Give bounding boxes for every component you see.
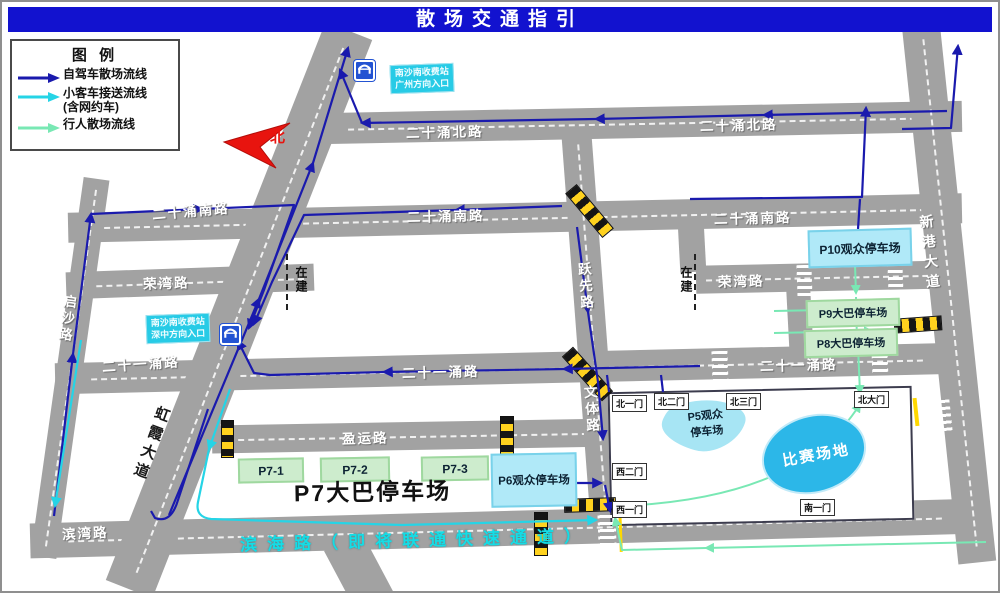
- legend: 图 例 自驾车散场流线 小客车接送流线 (含网约车) 行人散场流线: [10, 39, 180, 151]
- north-label: 北: [270, 126, 285, 147]
- parking-p6: P6观众停车场: [491, 452, 578, 507]
- road-label-wenti: 文体路: [578, 384, 601, 435]
- parking-p9: P9大巴停车场: [806, 298, 901, 328]
- legend-item-label: 行人散场流线: [63, 118, 135, 132]
- road-label-binwan: 滨湾路: [62, 521, 109, 543]
- expressway-icon: [220, 324, 241, 345]
- gate-north-3: 北三门: [726, 393, 761, 410]
- road-label-rongwan-west: 荣湾路: [143, 271, 190, 293]
- legend-item-driving: 自驾车散场流线: [16, 68, 174, 84]
- toll-direction: 深中方向入口: [151, 328, 205, 342]
- gate-south-1: 南一门: [800, 499, 835, 516]
- road-label-ershiyong-south-center: 二十涌南路: [407, 204, 485, 226]
- parking-p10: P10观众停车场: [808, 228, 913, 269]
- under-construction-dash: [286, 254, 288, 310]
- traffic-guide-map: 散场交通指引: [0, 0, 1000, 593]
- pedestrian-flow-arrow-icon: [16, 122, 60, 134]
- expressway-icon: [354, 60, 375, 81]
- gate-west-2: 西二门: [612, 463, 647, 480]
- legend-item-label-line2: (含网约车): [63, 101, 147, 115]
- legend-item-label: 自驾车散场流线: [63, 68, 147, 82]
- gate-north-2: 北二门: [654, 393, 689, 410]
- road-label-ershiyiyong-center: 二十一涌路: [402, 360, 480, 382]
- parking-p7-title: P7大巴停车场: [294, 472, 452, 509]
- under-construction-label-east: 在建: [678, 266, 695, 294]
- toll-direction: 广州方向入口: [395, 78, 449, 92]
- legend-item-label-line1: 小客车接送流线: [63, 87, 147, 101]
- gate-north-main: 北大门: [854, 391, 889, 408]
- legend-item-pedestrian: 行人散场流线: [16, 118, 174, 134]
- gate-north-1: 北一门: [612, 395, 647, 412]
- shuttle-flow-arrow-icon: [16, 91, 60, 103]
- under-construction-label-west: 在建: [293, 266, 310, 294]
- road-label-yingyun: 盈运路: [342, 426, 389, 447]
- road-label-ershiyong-north-east: 二十涌北路: [700, 113, 778, 135]
- legend-item-label: 小客车接送流线 (含网约车): [63, 87, 147, 115]
- gate-west-1: 西一门: [612, 501, 647, 518]
- road-label-ershiyong-south-east: 二十涌南路: [714, 206, 792, 228]
- legend-title: 图 例: [16, 44, 174, 65]
- road-label-rongwan-east: 荣湾路: [718, 269, 765, 290]
- road-label-ershiyong-north-west: 二十涌北路: [406, 120, 484, 142]
- toll-shenzhong-entrance-label: 南沙南收费站 深中方向入口: [146, 313, 211, 345]
- toll-guangzhou-entrance-label: 南沙南收费站 广州方向入口: [390, 63, 455, 95]
- road-label-yuexian: 跃先路: [572, 261, 595, 312]
- driving-flow-arrow-icon: [16, 72, 60, 84]
- legend-item-shuttle: 小客车接送流线 (含网约车): [16, 87, 174, 115]
- road-label-ershiyiyong-east: 二十一涌路: [760, 353, 838, 375]
- page-title: 散场交通指引: [8, 7, 992, 32]
- under-construction-dash: [694, 254, 696, 310]
